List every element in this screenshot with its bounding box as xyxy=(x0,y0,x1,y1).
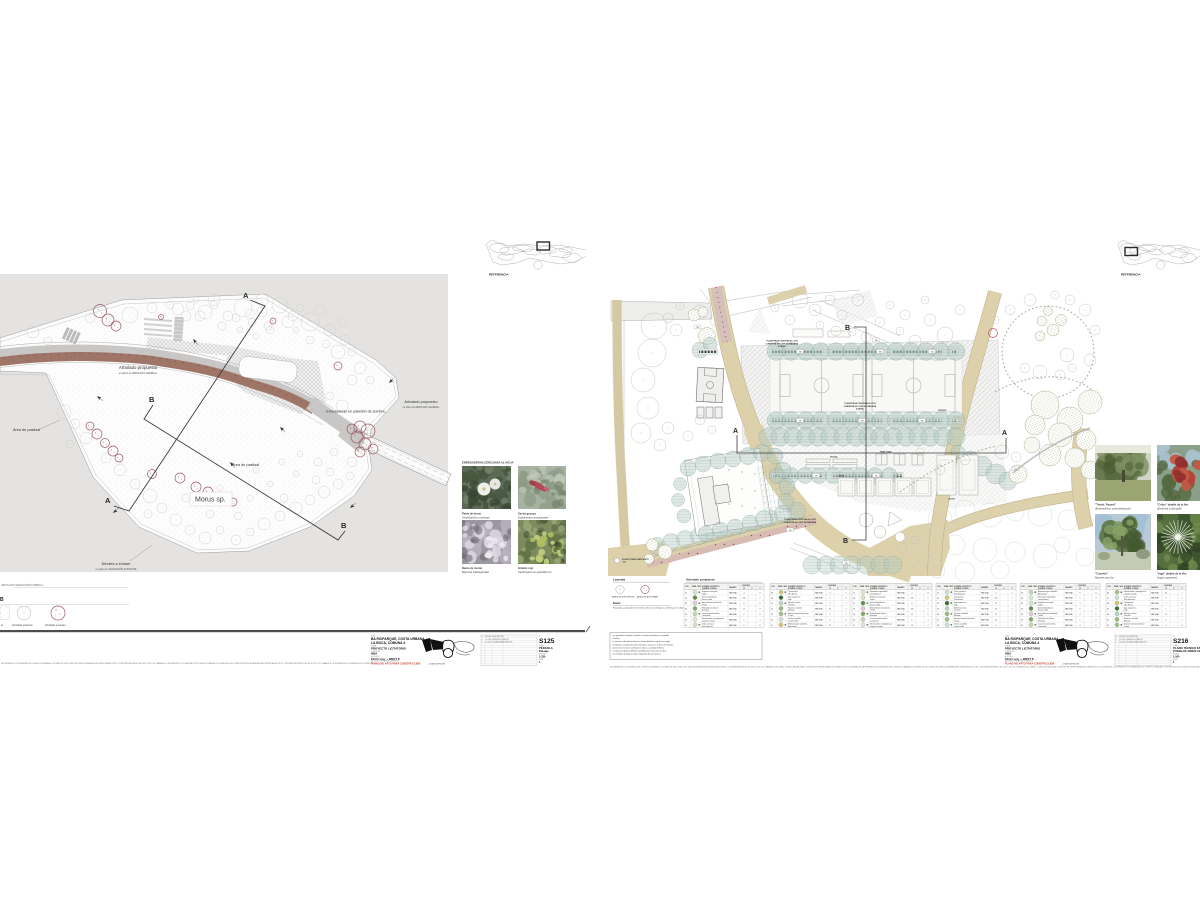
svg-text:Tipa blanca: Tipa blanca xyxy=(1124,604,1133,606)
svg-text:6: 6 xyxy=(912,619,913,621)
svg-text:Notas:: Notas: xyxy=(613,601,621,605)
svg-text:02.2021: 02.2021 xyxy=(486,641,492,643)
svg-text:CUBIERTA DE CHIP DE MADERA: CUBIERTA DE CHIP DE MADERA xyxy=(784,521,817,524)
svg-text:"Canelón": "Canelón" xyxy=(1095,572,1109,576)
svg-text:10: 10 xyxy=(995,609,997,611)
svg-text:8: 8 xyxy=(1182,603,1183,605)
svg-text:PLAYA POSIBLE MERCADITO: PLAYA POSIBLE MERCADITO xyxy=(622,558,649,561)
svg-text:10: 10 xyxy=(995,619,997,621)
svg-text:Arbolado propuesto: Arbolado propuesto xyxy=(686,578,715,582)
svg-text:7M: 7M xyxy=(921,420,924,422)
svg-text:8: 8 xyxy=(1182,625,1183,627)
svg-text:2: 2 xyxy=(830,598,831,600)
svg-text:3: 3 xyxy=(846,619,847,621)
svg-text:3: 3 xyxy=(830,619,831,621)
svg-text:ENREDADERAS CERCANAS AL AGUA: ENREDADERAS CERCANAS AL AGUA xyxy=(462,461,514,465)
svg-text:10: 10 xyxy=(911,625,913,627)
svg-text:3: 3 xyxy=(1012,598,1013,600)
svg-text:07: 07 xyxy=(685,625,687,627)
svg-text:"Ceibo" detalle de la flor.: "Ceibo" detalle de la flor. xyxy=(1157,503,1189,507)
svg-text:(Erythrina crista-galli): (Erythrina crista-galli) xyxy=(1157,507,1182,511)
svg-text:TAMAÑO: TAMAÑO xyxy=(1065,586,1073,589)
svg-text:100: 100 xyxy=(911,609,914,611)
svg-text:18: 18 xyxy=(853,609,855,611)
svg-text:NATURAL: NATURAL xyxy=(1065,618,1073,621)
svg-text:VER PLANO VEGETACIÓN FORMULA: VER PLANO VEGETACIÓN FORMULA xyxy=(1,584,44,587)
svg-text:B: B xyxy=(149,395,155,404)
svg-text:(Enterolobium contortisiliquum: (Enterolobium contortisiliquum) xyxy=(1095,507,1131,511)
svg-text:02: 02 xyxy=(685,598,687,600)
svg-text:8: 8 xyxy=(760,603,761,605)
svg-text:TAMAÑO: TAMAÑO xyxy=(897,586,905,589)
svg-text:NATURAL: NATURAL xyxy=(1151,591,1159,594)
svg-text:"Ingá" detalle de la flor.: "Ingá" detalle de la flor. xyxy=(1157,572,1187,576)
svg-text:Enredaderas en pabellón de som: Enredaderas en pabellón de sombra... xyxy=(326,410,387,414)
svg-text:Jacarandá: Jacarandá xyxy=(1038,625,1046,628)
svg-text:21: 21 xyxy=(853,625,855,627)
svg-text:Canelón: Canelón xyxy=(788,604,795,606)
svg-text:4: 4 xyxy=(1166,619,1167,621)
svg-text:1: 1 xyxy=(482,641,483,643)
svg-text:Sacha guasca: Sacha guasca xyxy=(518,512,536,516)
svg-text:A: A xyxy=(733,428,738,435)
svg-text:Lapacho rosado: Lapacho rosado xyxy=(870,625,883,628)
svg-text:100: 100 xyxy=(995,598,998,600)
svg-text:Ceibo: Ceibo xyxy=(1038,604,1043,606)
svg-text:Myrsine parvula: Myrsine parvula xyxy=(1095,576,1114,580)
svg-text:3: 3 xyxy=(846,598,847,600)
svg-text:100: 100 xyxy=(743,598,746,600)
svg-text:10: 10 xyxy=(771,603,773,605)
svg-text:26: 26 xyxy=(937,614,939,616)
svg-text:Arbolado propuesto: Arbolado propuesto xyxy=(119,365,158,370)
svg-text:7M: 7M xyxy=(789,530,792,532)
svg-text:12: 12 xyxy=(995,614,997,616)
svg-text:3: 3 xyxy=(1182,609,1183,611)
svg-text:Palo borracho: Palo borracho xyxy=(702,625,713,628)
svg-text:FÚTBOL: FÚTBOL xyxy=(938,409,948,412)
svg-text:por lo tanto el número verific: por lo tanto el número verificado en obr… xyxy=(613,646,665,649)
svg-text:SÍMB. TAM.: SÍMB. TAM. xyxy=(1114,585,1124,588)
svg-text:8: 8 xyxy=(1096,614,1097,616)
svg-text:en plano de ARBOLADO GENERAL: en plano de ARBOLADO GENERAL xyxy=(403,406,441,409)
svg-text:13: 13 xyxy=(771,620,773,622)
svg-text:1: 1 xyxy=(846,603,847,605)
svg-text:S125: S125 xyxy=(539,638,555,645)
svg-text:PLANTERAS CENTRALES CON: PLANTERAS CENTRALES CON xyxy=(844,402,876,405)
svg-text:12: 12 xyxy=(829,625,831,627)
svg-text:8: 8 xyxy=(760,592,761,594)
svg-text:Timbó: Timbó xyxy=(1038,615,1043,617)
svg-text:NATURAL: NATURAL xyxy=(1065,613,1073,616)
svg-text:4: 4 xyxy=(1012,603,1013,605)
svg-text:B: B xyxy=(845,325,850,332)
svg-text:REFERENCIA: REFERENCIA xyxy=(489,273,509,277)
svg-text:24: 24 xyxy=(937,603,939,605)
svg-text:28: 28 xyxy=(937,625,939,627)
svg-text:3: 3 xyxy=(1012,614,1013,616)
svg-text:2: 2 xyxy=(744,614,745,616)
svg-text:se ajusta al replanteo definit: se ajusta al replanteo definitivo aproba… xyxy=(613,650,667,653)
svg-text:ÁRBOLES A EXTRAER: ÁRBOLES A EXTRAER xyxy=(637,596,659,599)
svg-text:al replanteo y condiciones del: al replanteo y condiciones del contratis… xyxy=(613,643,675,646)
svg-text:Peine de mono: Peine de mono xyxy=(462,512,481,516)
svg-text:3: 3 xyxy=(1080,603,1081,605)
svg-text:NATURAL: NATURAL xyxy=(981,608,989,611)
svg-text:FILO.t arq. + WEST 8: FILO.t arq. + WEST 8 xyxy=(1005,657,1034,661)
svg-text:12: 12 xyxy=(743,609,745,611)
svg-text:Timbó: Timbó xyxy=(702,604,707,606)
svg-text:NATURAL: NATURAL xyxy=(815,591,823,594)
svg-text:NATURAL: NATURAL xyxy=(1151,597,1159,600)
svg-text:35: 35 xyxy=(1021,625,1023,627)
svg-text:NATURAL: NATURAL xyxy=(815,624,823,627)
svg-text:1: 1 xyxy=(928,598,929,600)
svg-text:8: 8 xyxy=(1080,592,1081,594)
svg-text:04: 04 xyxy=(685,609,687,611)
svg-text:PLANO NO APTO PARA CONSTRUCCIÓ: PLANO NO APTO PARA CONSTRUCCIÓN xyxy=(1005,662,1055,665)
svg-text:8: 8 xyxy=(912,603,913,605)
svg-text:4: 4 xyxy=(744,592,745,594)
svg-text:1: 1 xyxy=(928,609,929,611)
svg-text:Ceibo: Ceibo xyxy=(702,593,707,595)
svg-text:"Timbó, Pacará": "Timbó, Pacará" xyxy=(1095,503,1117,507)
svg-text:La vista de cada árbol a plant: La vista de cada árbol a plantar en form… xyxy=(613,640,671,643)
svg-text:7M: 7M xyxy=(931,351,934,353)
svg-text:4: 4 xyxy=(996,625,997,627)
svg-text:PUEBLOS ARBOLADOS: PUEBLOS ARBOLADOS xyxy=(1173,649,1200,653)
svg-text:Dolichandra cynanchoides: Dolichandra cynanchoides xyxy=(518,516,549,520)
svg-text:Dama de monte: Dama de monte xyxy=(462,566,483,570)
svg-text:05: 05 xyxy=(685,614,687,616)
svg-text:2: 2 xyxy=(760,598,761,600)
svg-text:NATURAL: NATURAL xyxy=(1151,608,1159,611)
svg-text:37: 37 xyxy=(1107,598,1109,600)
svg-text:NATURAL: NATURAL xyxy=(1151,613,1159,616)
svg-text:NATURAL: NATURAL xyxy=(897,597,905,600)
svg-text:NATURAL: NATURAL xyxy=(981,591,989,594)
svg-text:27: 27 xyxy=(937,620,939,622)
svg-text:NATURAL: NATURAL xyxy=(815,608,823,611)
svg-text:LA PRESENTE DOCUMENTACIÓN CONF: LA PRESENTE DOCUMENTACIÓN CONFECCIONADA … xyxy=(610,666,1200,669)
svg-text:en plano de ARBOLADO GENERAL: en plano de ARBOLADO GENERAL xyxy=(119,372,158,375)
svg-text:SÍMB. TAM.: SÍMB. TAM. xyxy=(944,585,954,588)
svg-text:17: 17 xyxy=(853,603,855,605)
svg-text:con el objeto de lograr la mej: con el objeto de lograr la mejor adaptac… xyxy=(613,653,662,656)
svg-text:A: A xyxy=(105,496,111,505)
svg-text:1: 1 xyxy=(1080,619,1081,621)
svg-text:3: 3 xyxy=(830,603,831,605)
svg-text:NATURAL: NATURAL xyxy=(1065,602,1073,605)
svg-text:A: A xyxy=(243,291,249,300)
svg-text:NATURAL: NATURAL xyxy=(729,624,737,627)
svg-text:NATURAL: NATURAL xyxy=(981,618,989,621)
svg-text:1: 1 xyxy=(1096,609,1097,611)
svg-text:29: 29 xyxy=(1021,592,1023,594)
svg-text:0: 0 xyxy=(482,639,483,641)
svg-text:1: 1 xyxy=(1012,625,1013,627)
svg-text:NATURAL: NATURAL xyxy=(1065,624,1073,627)
svg-text:34: 34 xyxy=(1021,620,1023,622)
svg-text:30: 30 xyxy=(1021,598,1023,600)
svg-text:NATURAL: NATURAL xyxy=(897,608,905,611)
svg-text:Morus sp.: Morus sp. xyxy=(195,497,226,504)
svg-text:SOCIAL: SOCIAL xyxy=(830,456,839,459)
svg-text:NATURAL: NATURAL xyxy=(729,597,737,600)
svg-text:A: A xyxy=(1002,430,1007,437)
svg-text:NATURAL: NATURAL xyxy=(729,602,737,605)
svg-text:2: 2 xyxy=(1012,619,1013,621)
svg-text:NATURAL: NATURAL xyxy=(815,618,823,621)
svg-text:NATURAL: NATURAL xyxy=(815,613,823,616)
svg-text:11: 11 xyxy=(771,609,773,611)
svg-text:12: 12 xyxy=(911,614,913,616)
svg-text:12: 12 xyxy=(771,614,773,616)
svg-text:TAMAÑO: TAMAÑO xyxy=(815,586,823,589)
svg-text:REFERENCIA: REFERENCIA xyxy=(1121,273,1141,277)
svg-text:4: 4 xyxy=(1080,625,1081,627)
svg-text:Área de pastizal: Área de pastizal xyxy=(13,428,40,432)
svg-text:1: 1 xyxy=(1116,641,1117,643)
svg-text:7M: 7M xyxy=(875,475,878,477)
svg-text:7M: 7M xyxy=(879,351,882,353)
svg-text:08: 08 xyxy=(771,592,773,594)
svg-text:Bignonia callistegioides: Bignonia callistegioides xyxy=(462,570,490,574)
svg-text:4: 4 xyxy=(928,625,929,627)
svg-text:Anacahuita: Anacahuita xyxy=(788,625,797,628)
svg-text:8: 8 xyxy=(760,614,761,616)
svg-text:en plano de VEGETACIÓN EXISTEN: en plano de VEGETACIÓN EXISTENTE xyxy=(96,568,137,571)
svg-text:NATURAL: NATURAL xyxy=(897,591,905,594)
svg-text:09: 09 xyxy=(771,598,773,600)
svg-text:39: 39 xyxy=(1107,609,1109,611)
svg-text:36: 36 xyxy=(1107,592,1109,594)
svg-text:31: 31 xyxy=(1021,603,1023,605)
svg-text:8: 8 xyxy=(928,614,929,616)
svg-text:A NIVEL: A NIVEL xyxy=(856,408,865,411)
svg-text:Arbolado propuesto: Arbolado propuesto xyxy=(404,400,437,404)
svg-text:B: B xyxy=(341,521,347,530)
svg-text:Ingá: Ingá xyxy=(954,604,957,606)
svg-text:3: 3 xyxy=(996,592,997,594)
svg-text:Ingá: Ingá xyxy=(1124,610,1127,612)
svg-text:1: 1 xyxy=(846,614,847,616)
svg-text:SÍMB. TAM.: SÍMB. TAM. xyxy=(1028,585,1038,588)
svg-text:1:500: 1:500 xyxy=(1173,655,1180,658)
svg-text:23: 23 xyxy=(937,598,939,600)
svg-text:02.2021: 02.2021 xyxy=(1120,641,1126,643)
svg-text:1: 1 xyxy=(1166,609,1167,611)
svg-text:NATURAL: NATURAL xyxy=(981,602,989,605)
svg-text:19: 19 xyxy=(853,614,855,616)
svg-text:Canelón: Canelón xyxy=(1124,615,1131,617)
svg-text:+ PLANO NUTRICIÓN: + PLANO NUTRICIÓN xyxy=(428,662,446,665)
svg-text:7M: 7M xyxy=(861,420,864,422)
svg-text:20: 20 xyxy=(853,620,855,622)
svg-text:NATURAL: NATURAL xyxy=(1065,608,1073,611)
svg-text:6: 6 xyxy=(744,625,745,627)
svg-text:PLANO NO APTO PARA CONSTRUCCIÓ: PLANO NO APTO PARA CONSTRUCCIÓN xyxy=(371,662,421,665)
svg-text:SÍMB. TAM.: SÍMB. TAM. xyxy=(778,585,788,588)
svg-text:03: 03 xyxy=(685,603,687,605)
svg-text:4: 4 xyxy=(760,619,761,621)
svg-text:1: 1 xyxy=(1182,619,1183,621)
svg-text:4: 4 xyxy=(928,603,929,605)
svg-text:8: 8 xyxy=(760,625,761,627)
svg-text:+ PLANO NUTRICIÓN: + PLANO NUTRICIÓN xyxy=(1062,662,1080,665)
svg-text:4: 4 xyxy=(1012,592,1013,594)
svg-text:Amphilophium carolinae: Amphilophium carolinae xyxy=(461,516,490,520)
svg-text:el follaje.: el follaje. xyxy=(613,638,621,640)
svg-text:ÁRBOLES EXISTENTES: ÁRBOLES EXISTENTES xyxy=(612,596,635,599)
svg-text:8: 8 xyxy=(744,603,745,605)
svg-text:TENIS: TENIS xyxy=(838,476,845,478)
svg-text:TAMAÑO: TAMAÑO xyxy=(729,586,737,589)
svg-text:8: 8 xyxy=(760,609,761,611)
svg-text:S216: S216 xyxy=(1173,638,1189,645)
svg-text:22: 22 xyxy=(937,592,939,594)
svg-text:38: 38 xyxy=(1107,603,1109,605)
svg-text:PROYECTO LICITATORIO: PROYECTO LICITATORIO xyxy=(1005,647,1041,651)
svg-text:Laurel criollo: Laurel criollo xyxy=(954,625,964,628)
svg-text:Canelón: Canelón xyxy=(954,610,961,612)
svg-text:4: 4 xyxy=(928,619,929,621)
svg-text:7M: 7M xyxy=(845,563,848,565)
svg-text:1:250: 1:250 xyxy=(539,655,546,658)
svg-text:Cardiospermum grandiflorum: Cardiospermum grandiflorum xyxy=(518,570,552,574)
svg-text:SÍMB. TAM.: SÍMB. TAM. xyxy=(860,585,870,588)
svg-text:NATURAL: NATURAL xyxy=(897,618,905,621)
svg-text:NATURAL: NATURAL xyxy=(897,613,905,616)
svg-text:2: 2 xyxy=(1182,598,1183,600)
svg-text:Timbó: Timbó xyxy=(870,610,875,612)
svg-text:SÍMB. TAM.: SÍMB. TAM. xyxy=(692,585,702,588)
svg-text:NATURAL: NATURAL xyxy=(1151,624,1159,627)
svg-text:A NIVEL: A NIVEL xyxy=(778,345,787,348)
svg-text:10: 10 xyxy=(829,609,831,611)
svg-text:Enramada y arbustales: En el l: Enramada y arbustales: En el límite urba… xyxy=(613,607,687,610)
svg-text:8: 8 xyxy=(1166,598,1167,600)
svg-text:NATURAL: NATURAL xyxy=(897,602,905,605)
svg-text:NATURAL: NATURAL xyxy=(981,597,989,600)
svg-text:3: 3 xyxy=(1166,625,1167,627)
svg-text:2: 2 xyxy=(1096,603,1097,605)
svg-text:25: 25 xyxy=(937,609,939,611)
svg-text:1: 1 xyxy=(1080,598,1081,600)
svg-text:Globito rojo: Globito rojo xyxy=(518,566,534,570)
svg-text:B: B xyxy=(843,538,848,545)
svg-text:3: 3 xyxy=(1096,598,1097,600)
svg-text:01: 01 xyxy=(685,592,687,594)
svg-text:Arbolado existente: Arbolado existente xyxy=(12,624,33,627)
svg-text:PLANTERAS CENTRALES CON: PLANTERAS CENTRALES CON xyxy=(784,518,816,521)
svg-text:7M: 7M xyxy=(696,327,699,329)
svg-text:PLANTERAS CENTRALES CON: PLANTERAS CENTRALES CON xyxy=(766,340,798,343)
svg-text:PROYECTO LICITATORIO: PROYECTO LICITATORIO xyxy=(371,647,407,651)
svg-text:4: 4 xyxy=(1080,614,1081,616)
svg-text:HBA: HBA xyxy=(371,652,378,656)
svg-text:Arbolado a extraer: Arbolado a extraer xyxy=(45,624,66,627)
svg-text:(Inga uruguensis): (Inga uruguensis) xyxy=(1157,576,1177,580)
svg-text:LA BOCA, COMUNA 4: LA BOCA, COMUNA 4 xyxy=(1005,641,1039,645)
svg-text:2: 2 xyxy=(1182,614,1183,616)
svg-text:HBA: HBA xyxy=(1005,652,1012,656)
svg-text:NATURAL: NATURAL xyxy=(1151,602,1159,605)
svg-text:2: 2 xyxy=(912,592,913,594)
svg-text:FILO.t arq. + WEST 8: FILO.t arq. + WEST 8 xyxy=(371,657,400,661)
svg-text:7M: 7M xyxy=(815,475,818,477)
svg-text:16: 16 xyxy=(853,598,855,600)
svg-text:Tipa blanca: Tipa blanca xyxy=(788,593,797,595)
svg-text:NATURAL: NATURAL xyxy=(815,597,823,600)
svg-text:32: 32 xyxy=(1021,609,1023,611)
svg-text:3: 3 xyxy=(830,592,831,594)
svg-text:LA PRESENTE DOCUMENTACIÓN CONF: LA PRESENTE DOCUMENTACIÓN CONFECCIONADA … xyxy=(1,662,376,665)
svg-text:8: 8 xyxy=(928,592,929,594)
svg-text:NATURAL: NATURAL xyxy=(729,608,737,611)
svg-text:VOLEY: VOLEY xyxy=(948,499,956,501)
svg-text:Leyenda: Leyenda xyxy=(613,578,626,582)
svg-text:NATURAL: NATURAL xyxy=(981,613,989,616)
svg-text:2: 2 xyxy=(830,614,831,616)
svg-text:8: 8 xyxy=(1096,625,1097,627)
svg-text:NATURAL: NATURAL xyxy=(1151,618,1159,621)
svg-text:NATURAL: NATURAL xyxy=(729,591,737,594)
svg-text:2: 2 xyxy=(1012,609,1013,611)
svg-text:100: 100 xyxy=(911,598,914,600)
svg-text:15: 15 xyxy=(853,592,855,594)
svg-text:12: 12 xyxy=(1165,614,1167,616)
svg-text:NATURAL: NATURAL xyxy=(815,602,823,605)
svg-text:33: 33 xyxy=(1021,614,1023,616)
svg-text:11.2020: 11.2020 xyxy=(486,639,492,641)
svg-text:8: 8 xyxy=(846,625,847,627)
svg-text:NATURAL: NATURAL xyxy=(729,618,737,621)
svg-text:4: 4 xyxy=(846,609,847,611)
svg-text:Árboles a extraer: Árboles a extraer xyxy=(102,562,132,566)
svg-text:CUBIERTA DE CHIP DE MADERA: CUBIERTA DE CHIP DE MADERA xyxy=(844,405,877,408)
svg-text:TAMAÑO: TAMAÑO xyxy=(1151,586,1159,589)
svg-text:41: 41 xyxy=(1107,620,1109,622)
svg-text:Paisaje: Paisaje xyxy=(539,649,549,653)
svg-text:NATURAL: NATURAL xyxy=(897,624,905,627)
svg-text:6: 6 xyxy=(1080,609,1081,611)
svg-text:3: 3 xyxy=(846,592,847,594)
svg-text:42: 42 xyxy=(1107,625,1109,627)
svg-text:NATURAL: NATURAL xyxy=(1065,597,1073,600)
svg-text:0: 0 xyxy=(1116,639,1117,641)
svg-text:11.2020: 11.2020 xyxy=(1120,639,1126,641)
svg-text:CUBIERTA DE CHIP DE MADERA: CUBIERTA DE CHIP DE MADERA xyxy=(766,342,799,345)
svg-text:2: 2 xyxy=(1182,592,1183,594)
svg-text:NATURAL: NATURAL xyxy=(981,624,989,627)
svg-text:8: 8 xyxy=(1096,619,1097,621)
svg-text:12: 12 xyxy=(995,603,997,605)
svg-text:7M: 7M xyxy=(799,351,802,353)
svg-text:40: 40 xyxy=(1107,614,1109,616)
svg-text:Los ejemplares elegidos a plan: Los ejemplares elegidos a plantar en la … xyxy=(613,634,670,637)
svg-text:NATURAL: NATURAL xyxy=(1065,591,1073,594)
svg-text:1: 1 xyxy=(744,619,745,621)
svg-text:06: 06 xyxy=(685,620,687,622)
svg-text:10: 10 xyxy=(1165,592,1167,594)
svg-text:TAMAÑO: TAMAÑO xyxy=(981,586,989,589)
svg-text:1: 1 xyxy=(1166,603,1167,605)
svg-text:8: 8 xyxy=(1096,592,1097,594)
svg-text:Curupí: Curupí xyxy=(1124,625,1130,628)
svg-text:LA BOCA, COMUNA 4: LA BOCA, COMUNA 4 xyxy=(371,641,405,645)
svg-text:NATURAL: NATURAL xyxy=(729,613,737,616)
